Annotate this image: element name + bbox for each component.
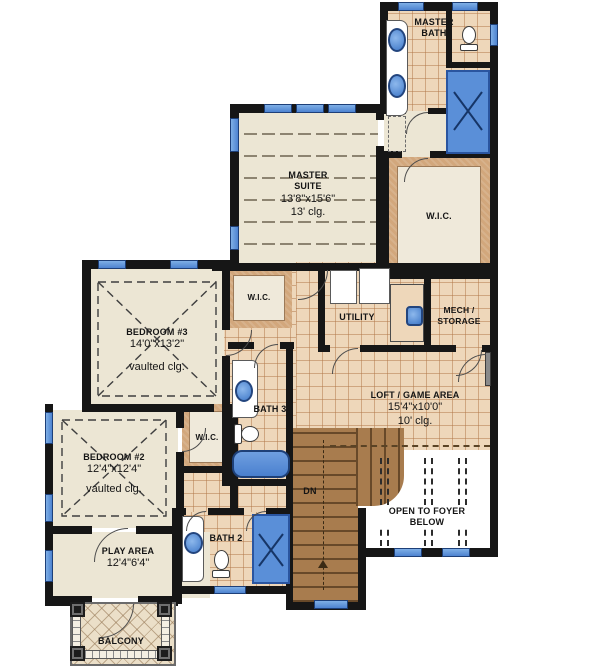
balcony-column xyxy=(72,648,83,659)
window xyxy=(45,494,53,522)
window xyxy=(328,104,356,113)
window xyxy=(452,2,478,11)
wall-bath3-bottom xyxy=(222,479,294,486)
linen-shelves xyxy=(388,116,406,152)
toilet-icon xyxy=(460,44,478,51)
wall-wic2-bottom xyxy=(182,466,232,473)
window xyxy=(314,600,348,609)
balcony-column xyxy=(159,648,170,659)
window xyxy=(230,226,239,250)
sink-icon xyxy=(235,380,253,402)
stair-arrow-up xyxy=(318,560,328,568)
toilet-icon xyxy=(212,570,230,578)
play-area-label: PLAY AREA 12'4"6'4" xyxy=(66,546,190,571)
wall-foyer-bottom xyxy=(362,548,498,557)
utility-label: UTILITY xyxy=(326,312,388,323)
wall-suite-right-a xyxy=(376,104,384,120)
wall-stairs-right xyxy=(358,508,366,608)
room-name: BEDROOM #2 xyxy=(56,452,172,463)
room-ceiling: 13' clg. xyxy=(250,206,366,220)
room-dims: 15'4"x10'0" xyxy=(352,401,478,415)
sink-icon xyxy=(388,74,406,98)
bath3-label: BATH 3 xyxy=(246,404,294,415)
stairs-dn-label: DN xyxy=(296,486,324,497)
wall-utility-bottom-b xyxy=(360,345,424,352)
wall-bed3-bottom-a xyxy=(82,404,214,412)
open-to-foyer-label: OPEN TO FOYER BELOW xyxy=(368,506,486,529)
balcony-railing xyxy=(72,614,81,650)
bedroom3-label: BEDROOM #3 14'0"x13'2" vaulted clg. xyxy=(98,327,216,375)
wall-bed2-bottom-a xyxy=(45,526,92,534)
loft-edge-dashed-line xyxy=(330,445,490,447)
wall-mech-bottom-a xyxy=(424,345,456,352)
room-ceiling: vaulted clg. xyxy=(98,361,216,375)
bathtub-icon xyxy=(232,450,290,478)
room-dims: 14'0"x13'2" xyxy=(98,338,216,352)
room-dims: 12'4"x12'4" xyxy=(56,463,172,477)
window xyxy=(45,412,53,444)
room-name: PLAY AREA xyxy=(66,546,190,557)
floor-plan: DN OPEN TO FOYER BELOW xyxy=(0,0,600,671)
utility-sink-icon xyxy=(406,306,423,326)
master-wic-label: W.I.C. xyxy=(408,211,470,222)
wall-bath2-top-a xyxy=(178,508,186,515)
master-suite-label: MASTER SUITE 13'8"x15'6" 13' clg. xyxy=(250,170,366,220)
foyer-railing xyxy=(424,458,433,546)
room-name: MASTER SUITE xyxy=(250,170,366,193)
loft-label: LOFT / GAME AREA 15'4"x10'0" 10' clg. xyxy=(352,390,478,429)
room-ceiling: 10' clg. xyxy=(352,415,478,429)
bath2-label: BATH 2 xyxy=(202,533,250,544)
hall-wic-label: W.I.C. xyxy=(230,293,288,303)
window xyxy=(214,586,246,594)
bedroom2-wic-label: W.I.C. xyxy=(180,433,234,443)
window xyxy=(442,548,470,557)
wall-vestibule-b xyxy=(428,108,448,114)
window xyxy=(98,260,126,269)
foyer-railing xyxy=(458,458,467,546)
window xyxy=(490,24,498,46)
window xyxy=(296,104,324,113)
window xyxy=(394,548,422,557)
room-ceiling: vaulted clg. xyxy=(56,483,172,497)
wall-bath2-top-b xyxy=(208,508,244,515)
balcony-railing xyxy=(161,614,170,650)
balcony-label: BALCONY xyxy=(86,636,156,647)
master-bath-label: MASTER BATH xyxy=(398,17,470,40)
window xyxy=(264,104,292,113)
window xyxy=(398,2,424,11)
room-dims: 13'8"x15'6" xyxy=(250,193,366,207)
balcony-railing xyxy=(84,650,158,659)
toilet-icon xyxy=(241,426,259,442)
dryer xyxy=(359,268,390,304)
wall-bed2-wic-a xyxy=(176,404,184,428)
wall-utility-top xyxy=(384,263,490,271)
washer xyxy=(330,270,357,304)
balcony-column xyxy=(72,604,83,615)
mech-storage-label: MECH / STORAGE xyxy=(428,305,490,326)
shower-icon xyxy=(446,70,490,154)
window xyxy=(45,550,53,582)
window xyxy=(170,260,198,269)
balcony-column xyxy=(159,604,170,615)
bedroom2-label: BEDROOM #2 12'4"x12'4" vaulted clg. xyxy=(56,452,172,497)
stair-run xyxy=(293,428,358,602)
wall-bed3-left xyxy=(82,260,91,412)
room-dims: 12'4"6'4" xyxy=(66,557,190,571)
wall-bed3-right-a xyxy=(222,264,230,330)
room-name: BEDROOM #3 xyxy=(98,327,216,338)
wall-wic-master-bottom xyxy=(382,271,492,279)
wall-wc-bottom xyxy=(446,62,492,68)
wall-right-exterior xyxy=(490,2,498,557)
toilet-icon xyxy=(214,550,229,570)
wall-utility-bottom-a xyxy=(318,345,330,352)
foyer-railing xyxy=(380,458,389,546)
window xyxy=(230,118,239,152)
wall-wic-master-left xyxy=(382,151,389,276)
room-name: LOFT / GAME AREA xyxy=(352,390,478,401)
wall-bed3-right-b xyxy=(222,356,230,482)
wall-mech-bottom-b xyxy=(482,345,490,352)
